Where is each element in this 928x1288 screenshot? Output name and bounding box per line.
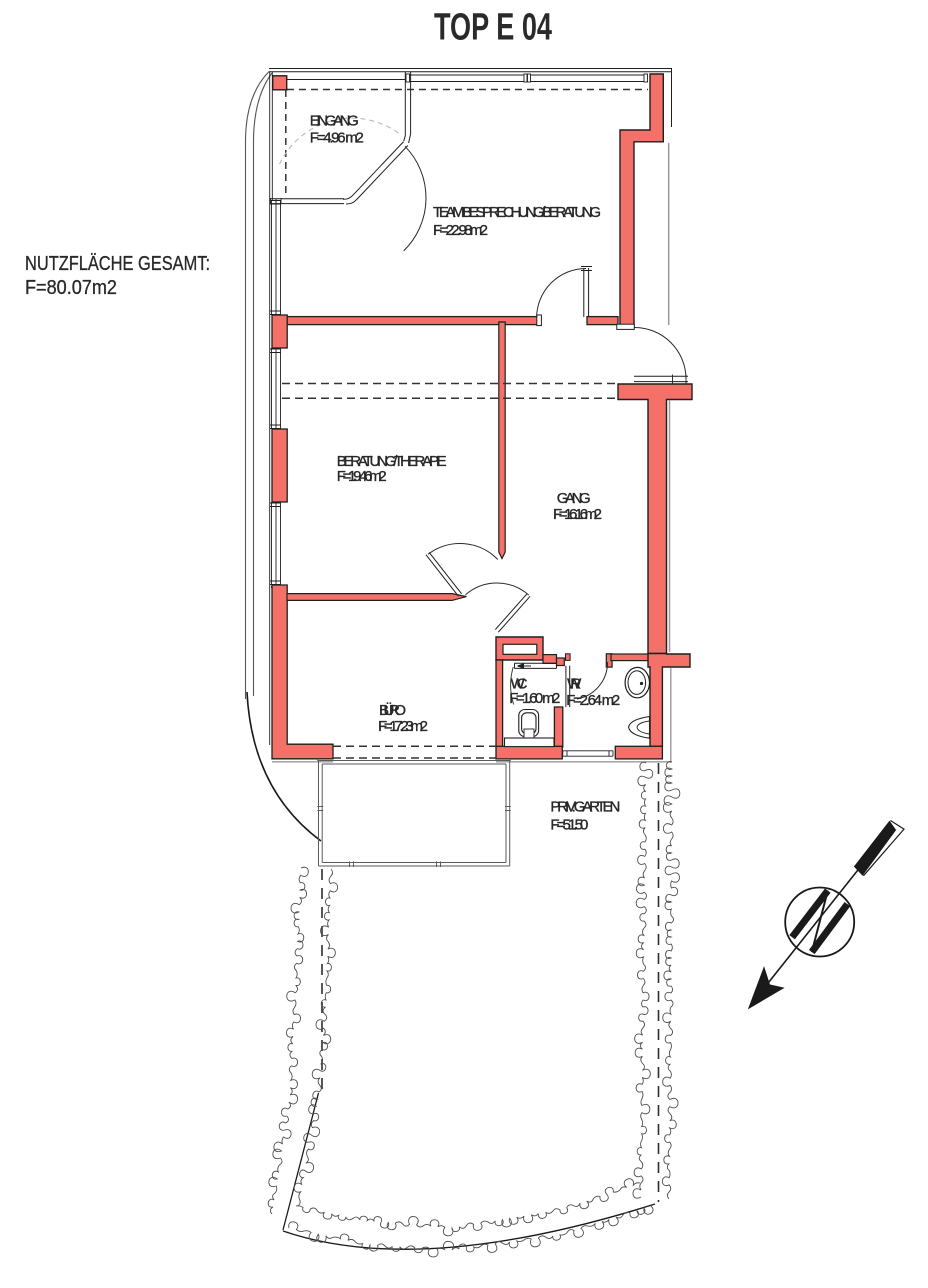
svg-text:F=16.16m2: F=16.16m2 [553,506,602,523]
svg-text:PRIV. GARTEN: PRIV. GARTEN [550,799,620,816]
svg-text:F=17.23m2: F=17.23m2 [378,718,428,735]
svg-text:GANG: GANG [557,490,591,507]
svg-text:F=22.98m2: F=22.98m2 [433,222,488,239]
svg-text:F=80.07m2: F=80.07m2 [25,277,117,299]
svg-text:F=1.60 m2: F=1.60 m2 [509,690,560,707]
svg-text:BÜRO: BÜRO [379,701,406,719]
svg-text:WR: WR [567,676,582,693]
svg-text:EINGANG: EINGANG [310,113,359,130]
svg-text:TEAM BESPRECHUNG/BERATUNG: TEAM BESPRECHUNG/BERATUNG [433,204,601,221]
svg-text:F=19.46m2: F=19.46m2 [337,468,387,485]
svg-text:F=51.50: F=51.50 [550,817,588,834]
svg-text:F=2.64 m2: F=2.64 m2 [566,692,620,709]
svg-text:NUTZFLÄCHE GESAMT:: NUTZFLÄCHE GESAMT: [25,253,210,275]
svg-text:F=4.96 m2: F=4.96 m2 [310,130,364,147]
svg-text:TOP E 04: TOP E 04 [434,7,552,49]
